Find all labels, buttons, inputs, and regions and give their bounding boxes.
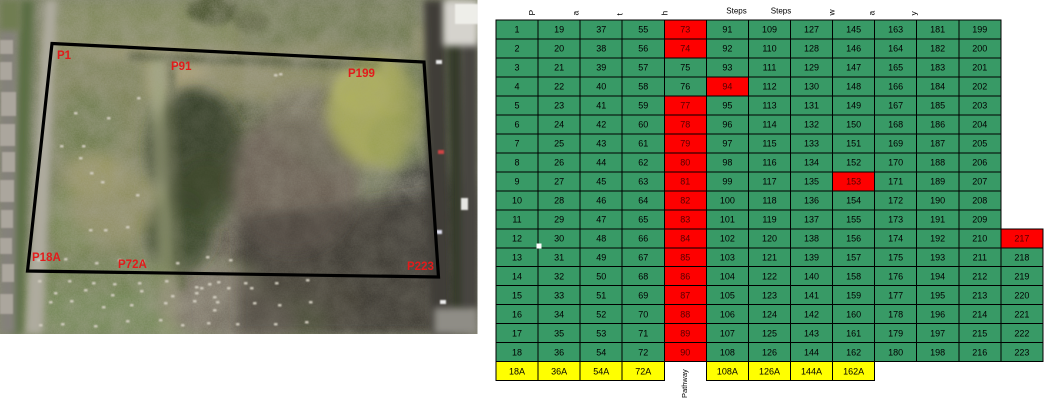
svg-text:199: 199 [972, 25, 987, 35]
svg-text:188: 188 [930, 158, 945, 168]
svg-text:186: 186 [930, 120, 945, 130]
svg-text:181: 181 [930, 25, 945, 35]
svg-text:86: 86 [680, 271, 690, 281]
svg-text:6: 6 [514, 120, 519, 130]
svg-text:95: 95 [722, 101, 732, 111]
svg-text:164: 164 [888, 44, 903, 54]
svg-text:101: 101 [720, 215, 735, 225]
svg-text:35: 35 [554, 328, 564, 338]
svg-text:72A: 72A [635, 366, 651, 376]
svg-text:74: 74 [680, 44, 690, 54]
svg-text:92: 92 [722, 44, 732, 54]
svg-text:107: 107 [720, 328, 735, 338]
svg-text:212: 212 [972, 271, 987, 281]
svg-text:t: t [615, 13, 625, 16]
svg-text:180: 180 [888, 347, 903, 357]
svg-text:29: 29 [554, 215, 564, 225]
svg-text:157: 157 [846, 252, 861, 262]
svg-text:182: 182 [930, 44, 945, 54]
svg-text:81: 81 [680, 177, 690, 187]
svg-text:218: 218 [1014, 252, 1029, 262]
svg-text:139: 139 [804, 252, 819, 262]
svg-text:100: 100 [720, 196, 735, 206]
svg-text:14: 14 [512, 271, 522, 281]
svg-text:49: 49 [596, 252, 606, 262]
svg-text:82: 82 [680, 196, 690, 206]
svg-text:47: 47 [596, 215, 606, 225]
svg-text:57: 57 [638, 63, 648, 73]
svg-text:77: 77 [680, 101, 690, 111]
svg-text:147: 147 [846, 63, 861, 73]
svg-text:28: 28 [554, 196, 564, 206]
svg-text:210: 210 [972, 234, 987, 244]
svg-text:44: 44 [596, 158, 606, 168]
svg-text:a: a [571, 11, 581, 16]
svg-text:34: 34 [554, 309, 564, 319]
svg-text:179: 179 [888, 328, 903, 338]
svg-text:187: 187 [930, 139, 945, 149]
svg-text:39: 39 [596, 63, 606, 73]
svg-text:38: 38 [596, 44, 606, 54]
svg-text:205: 205 [972, 139, 987, 149]
svg-text:13: 13 [512, 252, 522, 262]
svg-text:99: 99 [722, 177, 732, 187]
svg-text:222: 222 [1014, 328, 1029, 338]
svg-text:Steps: Steps [771, 7, 791, 16]
svg-text:165: 165 [888, 63, 903, 73]
svg-text:97: 97 [722, 139, 732, 149]
svg-text:121: 121 [762, 252, 777, 262]
svg-text:129: 129 [804, 63, 819, 73]
svg-text:103: 103 [720, 252, 735, 262]
svg-text:156: 156 [846, 234, 861, 244]
svg-text:68: 68 [638, 271, 648, 281]
svg-text:25: 25 [554, 139, 564, 149]
svg-text:50: 50 [596, 271, 606, 281]
svg-text:11: 11 [512, 215, 521, 225]
svg-text:122: 122 [762, 271, 777, 281]
svg-text:133: 133 [804, 139, 819, 149]
svg-text:194: 194 [930, 271, 945, 281]
svg-text:143: 143 [804, 328, 819, 338]
svg-text:69: 69 [638, 290, 648, 300]
svg-text:96: 96 [722, 120, 732, 130]
svg-text:55: 55 [638, 25, 648, 35]
svg-text:136: 136 [804, 196, 819, 206]
svg-text:a: a [867, 11, 877, 16]
svg-text:149: 149 [846, 101, 861, 111]
svg-text:127: 127 [804, 25, 819, 35]
svg-text:209: 209 [972, 215, 987, 225]
svg-text:112: 112 [762, 82, 776, 92]
svg-text:191: 191 [930, 215, 945, 225]
svg-text:166: 166 [888, 82, 903, 92]
svg-text:125: 125 [762, 328, 777, 338]
svg-text:21: 21 [554, 63, 564, 73]
svg-text:220: 220 [1014, 290, 1029, 300]
svg-text:119: 119 [762, 215, 776, 225]
svg-text:189: 189 [930, 177, 945, 187]
svg-text:87: 87 [680, 290, 690, 300]
svg-text:36: 36 [554, 347, 564, 357]
svg-text:98: 98 [722, 158, 732, 168]
svg-text:4: 4 [514, 82, 519, 92]
svg-text:175: 175 [888, 252, 903, 262]
svg-text:23: 23 [554, 101, 564, 111]
svg-text:31: 31 [554, 252, 564, 262]
svg-text:167: 167 [888, 101, 903, 111]
svg-text:P18A: P18A [32, 252, 61, 264]
svg-text:193: 193 [930, 252, 945, 262]
svg-text:132: 132 [804, 120, 819, 130]
svg-text:140: 140 [804, 271, 819, 281]
svg-text:30: 30 [554, 234, 564, 244]
svg-text:67: 67 [638, 252, 648, 262]
svg-text:15: 15 [512, 290, 522, 300]
svg-text:126: 126 [762, 347, 777, 357]
svg-text:93: 93 [722, 63, 732, 73]
svg-text:9: 9 [514, 177, 519, 187]
svg-text:219: 219 [1014, 271, 1029, 281]
svg-text:120: 120 [762, 234, 777, 244]
svg-text:162: 162 [846, 347, 861, 357]
svg-text:78: 78 [680, 120, 690, 130]
svg-text:63: 63 [638, 177, 648, 187]
svg-text:162A: 162A [843, 366, 864, 376]
svg-text:160: 160 [846, 309, 861, 319]
svg-text:91: 91 [722, 25, 732, 35]
svg-text:146: 146 [846, 44, 861, 54]
svg-text:116: 116 [762, 158, 776, 168]
svg-text:178: 178 [888, 309, 903, 319]
svg-text:128: 128 [804, 44, 819, 54]
svg-text:144A: 144A [801, 366, 822, 376]
svg-text:117: 117 [762, 177, 776, 187]
svg-text:18A: 18A [509, 366, 525, 376]
svg-text:105: 105 [720, 290, 735, 300]
svg-text:131: 131 [804, 101, 819, 111]
svg-text:177: 177 [888, 290, 903, 300]
svg-text:P: P [527, 10, 537, 16]
svg-text:73: 73 [680, 25, 690, 35]
svg-text:201: 201 [972, 63, 987, 73]
svg-text:5: 5 [514, 101, 519, 111]
svg-text:115: 115 [762, 139, 776, 149]
svg-text:18: 18 [512, 347, 522, 357]
svg-text:200: 200 [972, 44, 987, 54]
svg-text:48: 48 [596, 234, 606, 244]
svg-text:113: 113 [762, 101, 776, 111]
svg-text:72: 72 [638, 347, 648, 357]
svg-text:52: 52 [596, 309, 606, 319]
svg-text:198: 198 [930, 347, 945, 357]
svg-text:145: 145 [846, 25, 861, 35]
svg-text:153: 153 [846, 177, 861, 187]
svg-text:142: 142 [804, 309, 819, 319]
svg-text:84: 84 [680, 234, 690, 244]
svg-text:51: 51 [596, 290, 606, 300]
svg-text:75: 75 [680, 63, 690, 73]
svg-text:h: h [660, 11, 670, 16]
svg-text:211: 211 [973, 252, 987, 262]
svg-text:79: 79 [680, 139, 690, 149]
svg-text:104: 104 [720, 271, 735, 281]
svg-text:202: 202 [972, 82, 987, 92]
svg-text:P199: P199 [348, 68, 375, 80]
svg-text:22: 22 [554, 82, 564, 92]
svg-text:w: w [827, 9, 837, 17]
svg-text:185: 185 [930, 101, 945, 111]
svg-text:124: 124 [762, 309, 777, 319]
svg-text:65: 65 [638, 215, 648, 225]
svg-text:71: 71 [638, 328, 648, 338]
svg-text:174: 174 [888, 234, 903, 244]
svg-text:138: 138 [804, 234, 819, 244]
svg-text:214: 214 [972, 309, 987, 319]
svg-text:70: 70 [638, 309, 648, 319]
svg-text:8: 8 [514, 158, 519, 168]
svg-text:36A: 36A [551, 366, 567, 376]
svg-text:108: 108 [720, 347, 735, 357]
svg-text:184: 184 [930, 82, 945, 92]
svg-text:206: 206 [972, 158, 987, 168]
svg-text:37: 37 [596, 25, 606, 35]
svg-text:169: 169 [888, 139, 903, 149]
svg-text:217: 217 [1014, 234, 1029, 244]
svg-text:141: 141 [804, 290, 819, 300]
svg-text:110: 110 [762, 44, 776, 54]
svg-text:135: 135 [804, 177, 819, 187]
svg-text:204: 204 [972, 120, 987, 130]
svg-text:88: 88 [680, 309, 690, 319]
svg-text:53: 53 [596, 328, 606, 338]
svg-text:106: 106 [720, 309, 735, 319]
svg-text:76: 76 [680, 82, 690, 92]
svg-text:118: 118 [762, 196, 776, 206]
svg-text:158: 158 [846, 271, 861, 281]
svg-text:32: 32 [554, 271, 564, 281]
svg-text:123: 123 [762, 290, 777, 300]
svg-text:27: 27 [554, 177, 564, 187]
svg-text:40: 40 [596, 82, 606, 92]
svg-text:Steps: Steps [726, 7, 746, 16]
svg-text:89: 89 [680, 328, 690, 338]
svg-text:90: 90 [680, 347, 690, 357]
svg-text:137: 137 [804, 215, 819, 225]
svg-text:159: 159 [846, 290, 861, 300]
svg-text:P91: P91 [171, 61, 192, 73]
svg-text:83: 83 [680, 215, 690, 225]
svg-text:148: 148 [846, 82, 861, 92]
svg-text:66: 66 [638, 234, 648, 244]
svg-text:Pathway: Pathway [680, 369, 689, 398]
svg-text:64: 64 [638, 196, 648, 206]
svg-text:P223: P223 [407, 261, 434, 273]
svg-text:10: 10 [512, 196, 522, 206]
svg-text:54A: 54A [593, 366, 609, 376]
svg-text:144: 144 [804, 347, 819, 357]
svg-text:134: 134 [804, 158, 819, 168]
svg-text:1: 1 [514, 25, 519, 35]
svg-text:7: 7 [514, 139, 519, 149]
svg-text:60: 60 [638, 120, 648, 130]
svg-text:223: 223 [1014, 347, 1029, 357]
svg-text:215: 215 [972, 328, 987, 338]
svg-text:17: 17 [512, 328, 522, 338]
svg-text:20: 20 [554, 44, 564, 54]
svg-text:195: 195 [930, 290, 945, 300]
svg-text:33: 33 [554, 290, 564, 300]
svg-text:45: 45 [596, 177, 606, 187]
svg-text:P72A: P72A [118, 259, 147, 271]
svg-text:114: 114 [762, 120, 776, 130]
svg-text:172: 172 [888, 196, 903, 206]
svg-text:207: 207 [972, 177, 987, 187]
svg-text:12: 12 [512, 234, 522, 244]
svg-text:54: 54 [596, 347, 606, 357]
svg-text:152: 152 [846, 158, 861, 168]
svg-text:58: 58 [638, 82, 648, 92]
svg-text:43: 43 [596, 139, 606, 149]
svg-text:196: 196 [930, 309, 945, 319]
svg-text:102: 102 [720, 234, 735, 244]
svg-text:213: 213 [972, 290, 987, 300]
svg-text:203: 203 [972, 101, 987, 111]
svg-text:161: 161 [846, 328, 861, 338]
svg-text:111: 111 [763, 63, 777, 73]
svg-text:42: 42 [596, 120, 606, 130]
svg-text:2: 2 [514, 44, 519, 54]
svg-text:197: 197 [930, 328, 945, 338]
svg-text:190: 190 [930, 196, 945, 206]
svg-text:109: 109 [762, 25, 777, 35]
svg-text:192: 192 [930, 234, 945, 244]
svg-text:173: 173 [888, 215, 903, 225]
svg-text:170: 170 [888, 158, 903, 168]
svg-text:208: 208 [972, 196, 987, 206]
svg-text:61: 61 [638, 139, 648, 149]
svg-text:150: 150 [846, 120, 861, 130]
svg-text:163: 163 [888, 25, 903, 35]
svg-text:126A: 126A [759, 366, 780, 376]
svg-text:151: 151 [846, 139, 861, 149]
svg-text:y: y [909, 11, 919, 16]
svg-text:80: 80 [680, 158, 690, 168]
svg-text:94: 94 [722, 82, 732, 92]
svg-text:62: 62 [638, 158, 648, 168]
svg-text:P1: P1 [57, 50, 72, 62]
svg-text:168: 168 [888, 120, 903, 130]
svg-text:3: 3 [514, 63, 519, 73]
svg-text:155: 155 [846, 215, 861, 225]
svg-text:221: 221 [1014, 309, 1029, 319]
svg-text:59: 59 [638, 101, 648, 111]
svg-text:19: 19 [554, 25, 564, 35]
svg-text:154: 154 [846, 196, 861, 206]
svg-text:216: 216 [972, 347, 987, 357]
svg-text:24: 24 [554, 120, 564, 130]
svg-text:16: 16 [512, 309, 522, 319]
svg-text:183: 183 [930, 63, 945, 73]
svg-text:46: 46 [596, 196, 606, 206]
svg-text:41: 41 [596, 101, 606, 111]
svg-text:176: 176 [888, 271, 903, 281]
svg-text:26: 26 [554, 158, 564, 168]
svg-text:171: 171 [888, 177, 903, 187]
svg-text:85: 85 [680, 252, 690, 262]
svg-text:130: 130 [804, 82, 819, 92]
svg-text:56: 56 [638, 44, 648, 54]
svg-text:108A: 108A [717, 366, 738, 376]
